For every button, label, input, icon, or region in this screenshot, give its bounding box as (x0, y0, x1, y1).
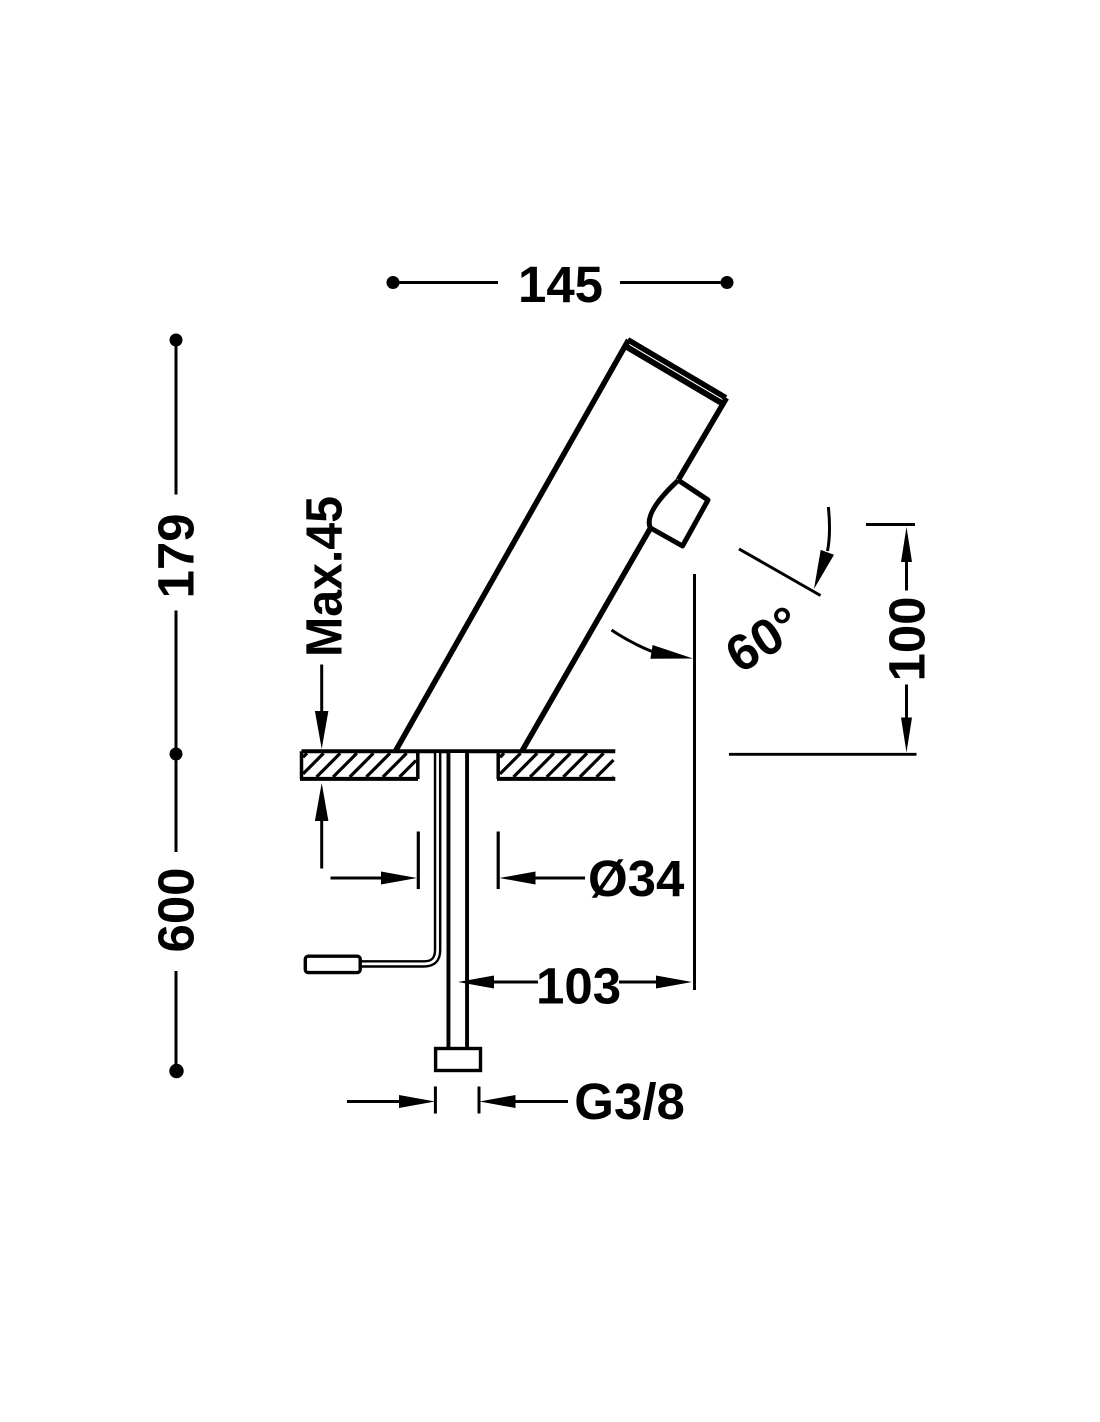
svg-text:103: 103 (536, 958, 621, 1015)
svg-text:Ø34: Ø34 (588, 850, 685, 907)
svg-text:179: 179 (148, 513, 205, 598)
svg-text:Max.45: Max.45 (296, 496, 353, 657)
svg-text:100: 100 (879, 596, 936, 681)
svg-text:G3/8: G3/8 (574, 1073, 685, 1130)
svg-text:60°: 60° (716, 595, 812, 684)
svg-text:600: 600 (148, 867, 205, 952)
svg-text:145: 145 (518, 256, 603, 313)
